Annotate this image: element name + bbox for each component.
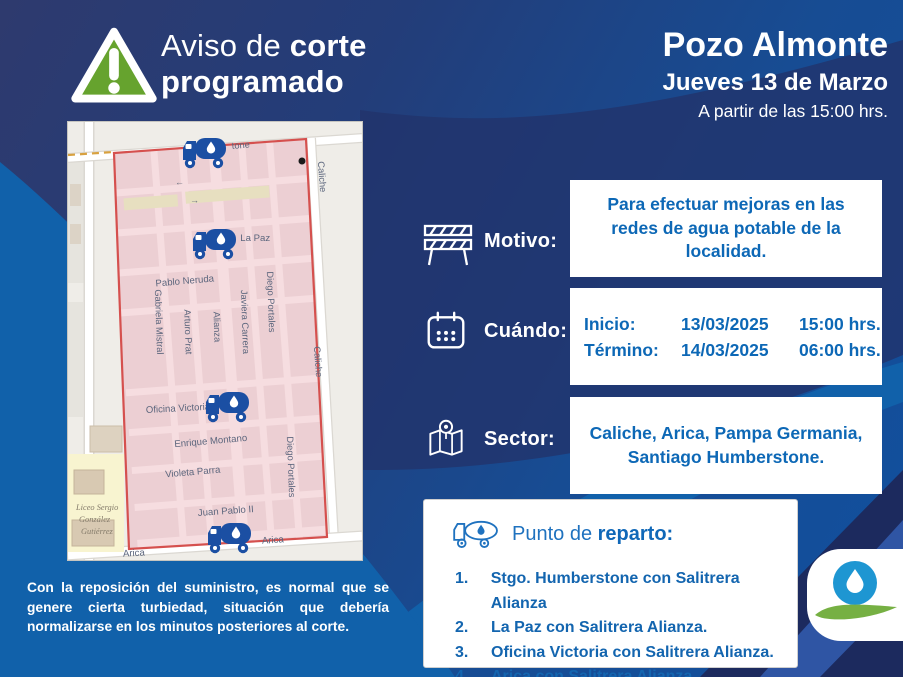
reparto-item-text: Arica con Salitrera Alianza. [491, 665, 697, 677]
alert-title: Aviso de corte programado [161, 28, 367, 100]
disclaimer-text: Con la reposición del suministro, es nor… [27, 578, 389, 637]
map-card: tone Caliche ← La Paz Pablo Neruda Gabri… [68, 122, 362, 560]
outage-start-note: A partir de las 15:00 hrs. [663, 99, 888, 123]
sector-map-icon [426, 418, 466, 460]
reparto-list: 1.Stgo. Humberstone con Salitrera Alianz… [424, 567, 797, 677]
alert-title-line2: programado [161, 64, 367, 100]
schedule-date: 13/03/2025 [681, 311, 799, 337]
street-label: Diego Portales [285, 436, 297, 498]
schedule-name: Término: [584, 337, 681, 363]
water-drop-logo [807, 549, 903, 641]
reparto-item-number: 2. [424, 616, 491, 641]
motivo-label: Motivo: [484, 230, 557, 253]
outage-notice-poster: Aviso de corte programado Pozo Almonte J… [0, 0, 903, 677]
reparto-header: Punto de reparto: [450, 516, 797, 552]
schedule-row: Inicio: 13/03/2025 15:00 hrs. [584, 311, 882, 337]
poi-label: González [79, 515, 111, 524]
motivo-box: Para efectuar mejoras en las redes de ag… [570, 180, 882, 277]
poi-label: Liceo Sergio [75, 503, 118, 512]
reparto-item-number: 4. [424, 665, 491, 677]
barrier-icon [422, 221, 474, 267]
calendar-icon [426, 310, 466, 352]
water-truck-outline-icon [450, 516, 502, 552]
schedule-time: 15:00 hrs. [799, 311, 881, 337]
reparto-title-bold: reparto: [598, 523, 674, 545]
street-label: Arica [123, 547, 146, 559]
alert-title-regular: Aviso de [161, 28, 290, 63]
motivo-text: Para efectuar mejoras en las redes de ag… [570, 193, 882, 264]
reparto-item: 4.Arica con Salitrera Alianza. [424, 665, 797, 677]
sector-box: Caliche, Arica, Pampa Germania, Santiago… [570, 397, 882, 494]
schedule-date: 14/03/2025 [681, 337, 799, 363]
reparto-item-number: 1. [424, 567, 491, 616]
reparto-item-text: Oficina Victoria con Salitrera Alianza. [491, 641, 774, 666]
cuando-box: Inicio: 13/03/2025 15:00 hrs. Término: 1… [570, 288, 882, 385]
header-right: Pozo Almonte Jueves 13 de Marzo A partir… [663, 24, 888, 123]
reparto-item: 3.Oficina Victoria con Salitrera Alianza… [424, 641, 797, 666]
reparto-title-regular: Punto de [512, 523, 598, 545]
street-label: Diego Portales [265, 271, 277, 333]
poi-label: Gutiérrez [81, 527, 114, 536]
schedule-name: Inicio: [584, 311, 681, 337]
reparto-title: Punto de reparto: [512, 523, 673, 546]
location-title: Pozo Almonte [663, 24, 888, 66]
reparto-item-number: 3. [424, 641, 491, 666]
street-label: Arica [262, 534, 285, 547]
brand-logo-badge [807, 549, 903, 641]
street-label: tone [231, 139, 250, 151]
schedule-row: Término: 14/03/2025 06:00 hrs. [584, 337, 882, 363]
sector-text: Caliche, Arica, Pampa Germania, Santiago… [570, 422, 882, 469]
one-way-arrow: ← [175, 177, 184, 187]
cuando-label: Cuándo: [484, 320, 567, 343]
street-label: Arturo Prat [182, 309, 194, 355]
reparto-item: 2.La Paz con Salitrera Alianza. [424, 616, 797, 641]
map-dot [299, 158, 306, 165]
outage-date: Jueves 13 de Marzo [663, 66, 888, 99]
reparto-item: 1.Stgo. Humberstone con Salitrera Alianz… [424, 567, 797, 616]
sector-label: Sector: [484, 428, 555, 451]
warning-triangle-icon [70, 24, 158, 108]
alert-title-bold: corte [290, 28, 367, 63]
reparto-box: Punto de reparto: 1.Stgo. Humberstone co… [423, 499, 798, 668]
street-label: Alianza [211, 311, 222, 343]
schedule-time: 06:00 hrs. [799, 337, 881, 363]
one-way-arrow: → [190, 195, 199, 205]
outage-map: tone Caliche ← La Paz Pablo Neruda Gabri… [68, 122, 362, 560]
reparto-item-text: La Paz con Salitrera Alianza. [491, 616, 707, 641]
reparto-item-text: Stgo. Humberstone con Salitrera Alianza [491, 567, 797, 616]
